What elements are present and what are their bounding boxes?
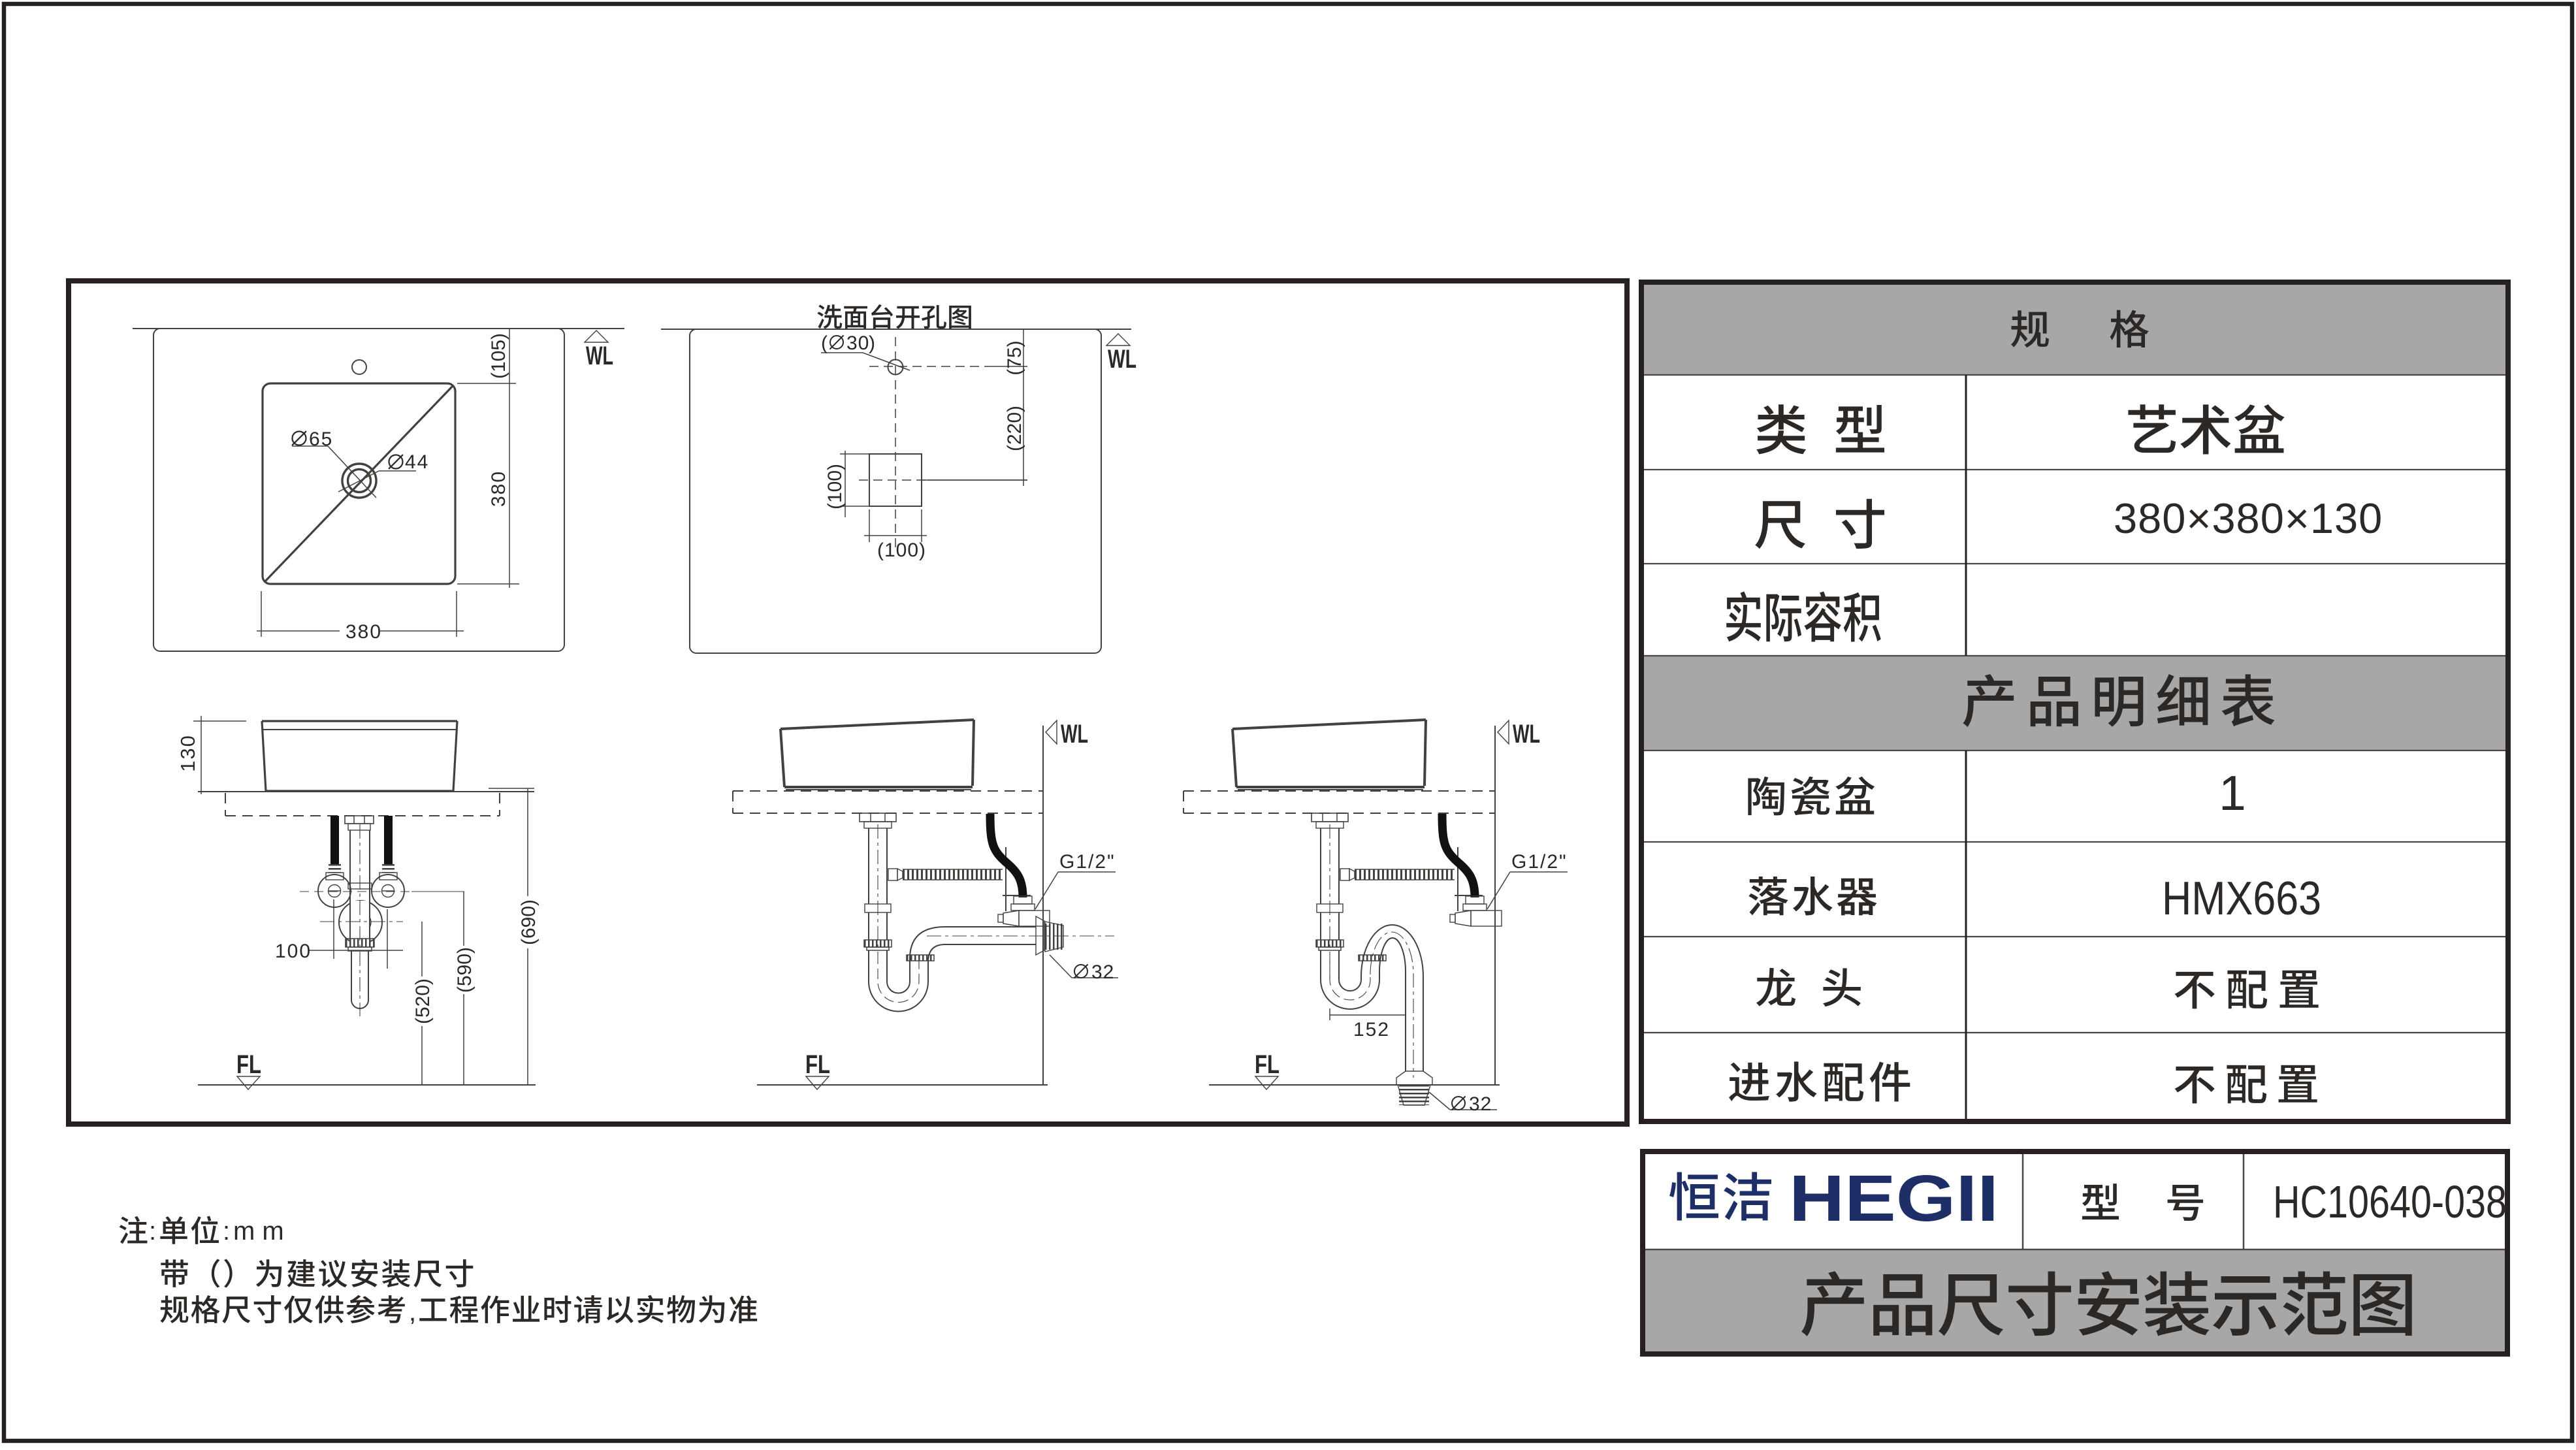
svg-text:100: 100 [275, 941, 312, 962]
svg-text:(75): (75) [1004, 340, 1025, 375]
svg-text:(: ( [821, 332, 828, 354]
svg-text:): ) [869, 332, 875, 354]
svg-text:152: 152 [1353, 1019, 1390, 1040]
svg-text:1: 1 [2219, 765, 2246, 820]
svg-text:G1/2": G1/2" [1511, 851, 1568, 873]
svg-text:380: 380 [488, 470, 509, 507]
svg-text:WL: WL [1061, 720, 1088, 749]
svg-text:65: 65 [309, 428, 333, 450]
svg-text:FL: FL [805, 1050, 830, 1079]
svg-text:32: 32 [1091, 961, 1114, 983]
svg-text:HEGII: HEGII [1789, 1162, 1999, 1235]
svg-text:(100): (100) [877, 540, 926, 561]
svg-text:WL: WL [586, 342, 613, 370]
svg-text:(220): (220) [1004, 406, 1025, 451]
svg-text:380: 380 [346, 621, 382, 643]
svg-text:32: 32 [1469, 1093, 1492, 1115]
svg-text:WL: WL [1108, 345, 1136, 374]
svg-text::: : [223, 1217, 230, 1246]
svg-text:380×380×130: 380×380×130 [2114, 494, 2383, 542]
svg-text:m m: m m [233, 1217, 284, 1246]
svg-text:44: 44 [405, 451, 429, 473]
svg-text:HC10640-038: HC10640-038 [2273, 1176, 2507, 1227]
svg-text:(590): (590) [454, 947, 475, 993]
svg-text:G1/2": G1/2" [1059, 851, 1116, 873]
svg-text:(520): (520) [412, 978, 434, 1024]
svg-text::: : [149, 1217, 156, 1246]
svg-text:(100): (100) [824, 464, 846, 509]
svg-text:(105): (105) [488, 333, 509, 379]
svg-text:,: , [409, 1298, 416, 1327]
svg-text:130: 130 [176, 734, 199, 772]
svg-text:FL: FL [1255, 1050, 1280, 1079]
svg-text:HMX663: HMX663 [2162, 873, 2321, 925]
svg-text:30: 30 [846, 332, 869, 354]
svg-text:FL: FL [236, 1050, 261, 1079]
svg-text:(690): (690) [518, 899, 539, 945]
svg-text:WL: WL [1513, 720, 1540, 749]
